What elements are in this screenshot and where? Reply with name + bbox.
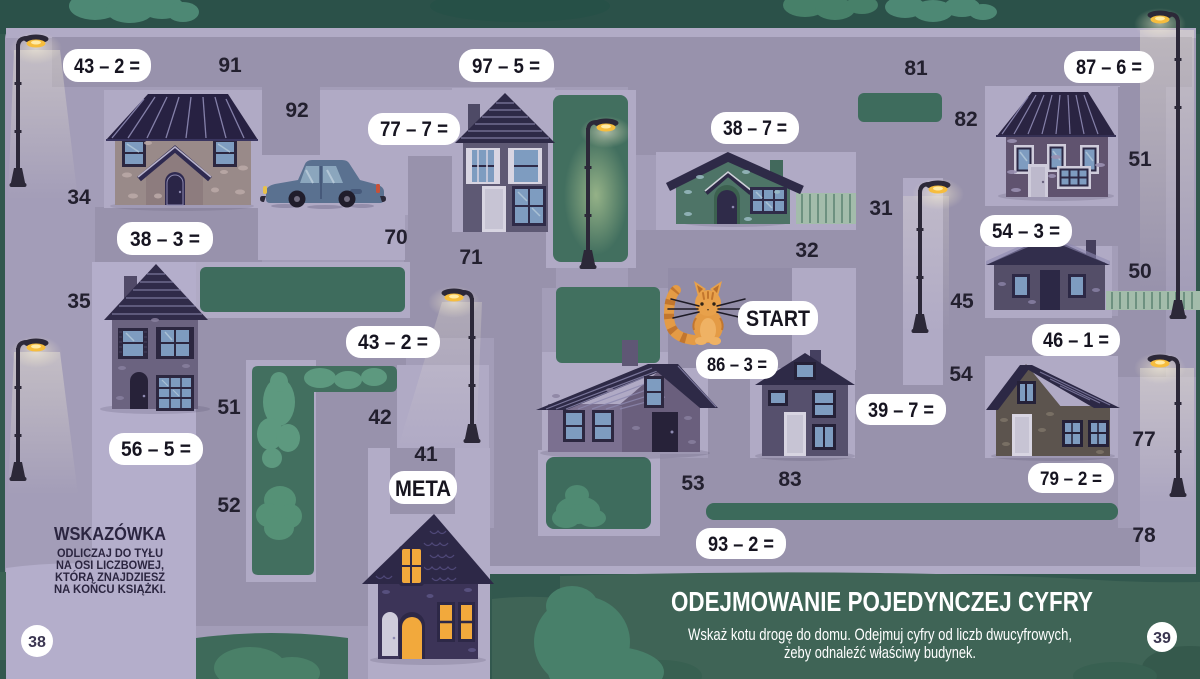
svg-text:META: META bbox=[395, 476, 451, 501]
svg-text:NA KOŃCU KSIĄŻKI.: NA KOŃCU KSIĄŻKI. bbox=[54, 583, 166, 596]
svg-text:53: 53 bbox=[681, 472, 704, 495]
svg-text:KTÓRĄ ZNAJDZIESZ: KTÓRĄ ZNAJDZIESZ bbox=[55, 571, 165, 584]
svg-text:87 – 6 =: 87 – 6 = bbox=[1076, 56, 1142, 79]
svg-text:70: 70 bbox=[384, 226, 407, 249]
svg-text:38 – 3 =: 38 – 3 = bbox=[130, 228, 200, 251]
svg-text:81: 81 bbox=[904, 57, 928, 80]
svg-text:35: 35 bbox=[67, 290, 91, 313]
svg-text:39: 39 bbox=[1153, 630, 1171, 647]
svg-text:34: 34 bbox=[67, 186, 91, 209]
svg-text:43 – 2 =: 43 – 2 = bbox=[74, 55, 140, 78]
svg-text:42: 42 bbox=[368, 406, 391, 429]
svg-text:39 – 7 =: 39 – 7 = bbox=[868, 399, 934, 422]
svg-text:41: 41 bbox=[414, 443, 438, 466]
svg-text:71: 71 bbox=[459, 246, 483, 269]
svg-text:51: 51 bbox=[217, 396, 241, 419]
svg-text:86 – 3 =: 86 – 3 = bbox=[707, 355, 767, 376]
svg-text:38: 38 bbox=[28, 634, 46, 651]
svg-text:31: 31 bbox=[869, 197, 893, 220]
svg-text:43 – 2 =: 43 – 2 = bbox=[358, 331, 428, 354]
svg-text:32: 32 bbox=[795, 239, 818, 262]
svg-text:54: 54 bbox=[949, 363, 973, 386]
svg-text:77 – 7 =: 77 – 7 = bbox=[380, 118, 448, 141]
svg-text:Wskaż kotu drogę do domu. Odej: Wskaż kotu drogę do domu. Odejmuj cyfry … bbox=[688, 626, 1072, 644]
svg-text:50: 50 bbox=[1128, 260, 1151, 283]
svg-text:ODLICZAJ DO TYŁU: ODLICZAJ DO TYŁU bbox=[57, 548, 163, 560]
svg-text:NA OSI LICZBOWEJ,: NA OSI LICZBOWEJ, bbox=[56, 560, 164, 572]
svg-text:żeby odnaleźć właściwy budynek: żeby odnaleźć właściwy budynek. bbox=[784, 644, 976, 662]
svg-text:46 – 1 =: 46 – 1 = bbox=[1043, 329, 1109, 352]
svg-text:91: 91 bbox=[218, 54, 242, 77]
svg-text:78: 78 bbox=[1132, 524, 1156, 547]
svg-text:56 – 5 =: 56 – 5 = bbox=[121, 438, 191, 461]
svg-text:54 – 3 =: 54 – 3 = bbox=[992, 220, 1060, 243]
svg-text:52: 52 bbox=[217, 494, 240, 517]
svg-text:38 – 7 =: 38 – 7 = bbox=[723, 117, 787, 140]
svg-text:79 – 2 =: 79 – 2 = bbox=[1040, 469, 1102, 490]
svg-text:ODEJMOWANIE POJEDYNCZEJ CYFRY: ODEJMOWANIE POJEDYNCZEJ CYFRY bbox=[671, 586, 1093, 617]
svg-text:82: 82 bbox=[954, 108, 977, 131]
svg-text:77: 77 bbox=[1132, 428, 1155, 451]
svg-text:97 – 5 =: 97 – 5 = bbox=[472, 55, 540, 78]
svg-text:92: 92 bbox=[285, 99, 308, 122]
svg-text:45: 45 bbox=[950, 290, 974, 313]
svg-text:83: 83 bbox=[778, 468, 801, 491]
svg-text:START: START bbox=[746, 306, 810, 331]
svg-text:51: 51 bbox=[1128, 148, 1152, 171]
svg-text:93 – 2 =: 93 – 2 = bbox=[708, 533, 774, 556]
svg-text:WSKAZÓWKA: WSKAZÓWKA bbox=[54, 523, 166, 544]
